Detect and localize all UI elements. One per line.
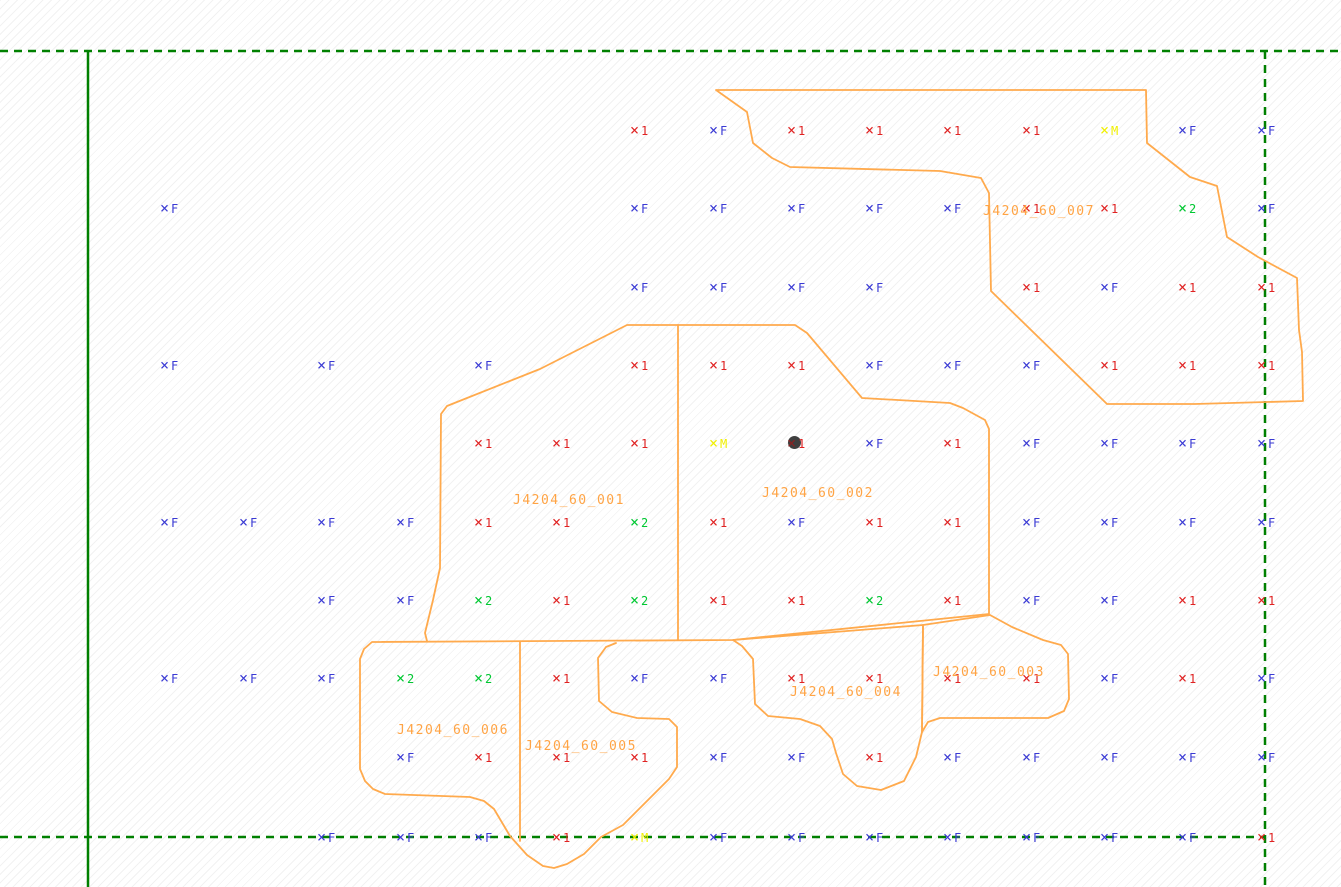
flag-marker-1[interactable]: ×1 (943, 592, 961, 608)
flag-marker-F[interactable]: ×F (1022, 592, 1040, 608)
flag-marker-F[interactable]: ×F (943, 749, 961, 765)
cross-icon: × (787, 434, 796, 452)
marker-type-letter: F (1189, 516, 1196, 530)
cross-icon: × (865, 121, 874, 139)
flag-marker-F[interactable]: ×F (396, 829, 414, 845)
marker-type-letter: 1 (1033, 124, 1040, 138)
flag-marker-F[interactable]: ×F (1022, 829, 1040, 845)
flag-marker-F[interactable]: ×F (787, 829, 805, 845)
flag-marker-F[interactable]: ×F (317, 829, 335, 845)
flag-marker-1[interactable]: ×1 (865, 514, 883, 530)
marker-type-letter: 1 (876, 672, 883, 686)
cross-icon: × (1100, 513, 1109, 531)
cross-icon: × (317, 828, 326, 846)
cross-icon: × (1100, 669, 1109, 687)
flag-marker-1[interactable]: ×1 (1257, 279, 1275, 295)
marker-type-letter: 1 (641, 124, 648, 138)
flag-marker-F[interactable]: ×F (1022, 435, 1040, 451)
cross-icon: × (552, 513, 561, 531)
flag-marker-1[interactable]: ×1 (943, 435, 961, 451)
cross-icon: × (160, 356, 169, 374)
flag-marker-1[interactable]: ×1 (1100, 200, 1118, 216)
flag-marker-1[interactable]: ×1 (1178, 279, 1196, 295)
cross-icon: × (1178, 278, 1187, 296)
flag-marker-F[interactable]: ×F (865, 279, 883, 295)
cross-icon: × (865, 513, 874, 531)
marker-type-letter: 1 (563, 594, 570, 608)
flag-marker-1[interactable]: ×1 (709, 357, 727, 373)
marker-type-letter: F (798, 831, 805, 845)
flag-marker-F[interactable]: ×F (709, 749, 727, 765)
flag-marker-F[interactable]: ×F (1100, 829, 1118, 845)
marker-type-letter: F (876, 202, 883, 216)
marker-type-letter: F (876, 831, 883, 845)
marker-type-letter: F (798, 516, 805, 530)
flag-marker-1[interactable]: ×1 (1178, 670, 1196, 686)
cross-icon: × (943, 748, 952, 766)
flag-marker-1[interactable]: ×1 (1178, 357, 1196, 373)
marker-type-letter: 1 (641, 751, 648, 765)
cross-icon: × (943, 356, 952, 374)
flag-marker-2[interactable]: ×2 (630, 592, 648, 608)
zone-label-J4204_60_002[interactable]: J4204_60_002 (762, 487, 874, 500)
cross-icon: × (160, 669, 169, 687)
cross-icon: × (787, 591, 796, 609)
marker-type-letter: 1 (641, 437, 648, 451)
flag-marker-F[interactable]: ×F (943, 357, 961, 373)
marker-type-letter: 1 (954, 594, 961, 608)
marker-type-letter: F (250, 516, 257, 530)
marker-type-letter: F (798, 751, 805, 765)
cross-icon: × (630, 121, 639, 139)
marker-type-letter: 2 (1189, 202, 1196, 216)
cross-icon: × (709, 828, 718, 846)
cross-icon: × (630, 356, 639, 374)
cross-icon: × (317, 513, 326, 531)
cross-icon: × (787, 828, 796, 846)
cross-icon: × (865, 828, 874, 846)
flag-marker-F[interactable]: ×F (474, 829, 492, 845)
marker-type-letter: F (1033, 831, 1040, 845)
cross-icon: × (239, 669, 248, 687)
flag-marker-F[interactable]: ×F (787, 514, 805, 530)
flag-marker-1[interactable]: ×1 (630, 435, 648, 451)
flag-marker-F[interactable]: ×F (1100, 592, 1118, 608)
flag-marker-1[interactable]: ×1 (630, 357, 648, 373)
marker-type-letter: F (1033, 751, 1040, 765)
marker-type-letter: F (798, 202, 805, 216)
marker-type-letter: M (720, 437, 727, 451)
flag-marker-F[interactable]: ×F (474, 357, 492, 373)
flag-marker-F[interactable]: ×F (1100, 670, 1118, 686)
cross-icon: × (552, 434, 561, 452)
cross-icon: × (865, 748, 874, 766)
cross-icon: × (787, 278, 796, 296)
flag-marker-F[interactable]: ×F (1178, 435, 1196, 451)
flag-marker-2[interactable]: ×2 (474, 670, 492, 686)
cross-icon: × (1022, 828, 1031, 846)
marker-type-letter: F (720, 202, 727, 216)
cross-icon: × (1178, 513, 1187, 531)
marker-type-letter: 1 (563, 516, 570, 530)
marker-type-letter: F (407, 516, 414, 530)
flag-marker-F[interactable]: ×F (787, 279, 805, 295)
zone-label-J4204_60_007[interactable]: J4204_60_007 (983, 205, 1095, 218)
marker-type-letter: 1 (954, 437, 961, 451)
marker-type-letter: F (1111, 751, 1118, 765)
flag-marker-F[interactable]: ×F (943, 200, 961, 216)
marker-type-letter: F (328, 831, 335, 845)
flag-marker-F[interactable]: ×F (1257, 122, 1275, 138)
flag-marker-F[interactable]: ×F (1100, 749, 1118, 765)
marker-type-letter: F (171, 359, 178, 373)
flag-marker-F[interactable]: ×F (317, 592, 335, 608)
cross-icon: × (1257, 356, 1266, 374)
cross-icon: × (552, 828, 561, 846)
cross-icon: × (630, 669, 639, 687)
marker-type-letter: F (720, 672, 727, 686)
marker-type-letter: F (1189, 751, 1196, 765)
flag-marker-2[interactable]: ×2 (1178, 200, 1196, 216)
flag-marker-F[interactable]: ×F (1178, 514, 1196, 530)
marker-type-letter: 1 (1033, 281, 1040, 295)
marker-type-letter: 1 (798, 594, 805, 608)
marker-type-letter: F (171, 202, 178, 216)
flag-marker-2[interactable]: ×2 (396, 670, 414, 686)
marker-type-letter: F (641, 281, 648, 295)
flag-marker-F[interactable]: ×F (787, 749, 805, 765)
cross-icon: × (1100, 591, 1109, 609)
cross-icon: × (709, 434, 718, 452)
marker-type-letter: F (1111, 281, 1118, 295)
marker-type-letter: 1 (876, 124, 883, 138)
marker-type-letter: F (1268, 202, 1275, 216)
cross-icon: × (396, 748, 405, 766)
cross-icon: × (787, 121, 796, 139)
flag-marker-2[interactable]: ×2 (474, 592, 492, 608)
flag-marker-F[interactable]: ×F (160, 670, 178, 686)
flag-marker-F[interactable]: ×F (1257, 200, 1275, 216)
marker-type-letter: F (250, 672, 257, 686)
marker-type-letter: 1 (720, 516, 727, 530)
marker-type-letter: F (720, 124, 727, 138)
cross-icon: × (1178, 356, 1187, 374)
marker-type-letter: 1 (563, 437, 570, 451)
marker-type-letter: 1 (954, 516, 961, 530)
cross-icon: × (787, 748, 796, 766)
marker-type-letter: F (641, 202, 648, 216)
flag-marker-M[interactable]: ×M (630, 829, 648, 845)
flag-marker-F[interactable]: ×F (630, 670, 648, 686)
flag-marker-F[interactable]: ×F (1100, 514, 1118, 530)
flag-marker-F[interactable]: ×F (1257, 749, 1275, 765)
marker-type-letter: 1 (1189, 359, 1196, 373)
flag-marker-F[interactable]: ×F (709, 122, 727, 138)
flag-marker-1[interactable]: ×1 (1100, 357, 1118, 373)
flag-marker-1[interactable]: ×1 (630, 122, 648, 138)
marker-type-letter: 1 (485, 516, 492, 530)
flag-marker-1[interactable]: ×1 (943, 514, 961, 530)
marker-type-letter: F (798, 281, 805, 295)
marker-type-letter: 1 (485, 437, 492, 451)
flag-marker-1[interactable]: ×1 (787, 592, 805, 608)
cross-icon: × (1178, 748, 1187, 766)
cross-icon: × (865, 591, 874, 609)
marker-type-letter: 1 (1268, 281, 1275, 295)
marker-type-letter: F (641, 672, 648, 686)
cross-icon: × (943, 828, 952, 846)
flag-marker-M[interactable]: ×M (1100, 122, 1118, 138)
marker-type-letter: 1 (954, 124, 961, 138)
marker-type-letter: 1 (1268, 359, 1275, 373)
flag-marker-F[interactable]: ×F (1178, 829, 1196, 845)
flag-marker-F[interactable]: ×F (239, 514, 257, 530)
flag-marker-1[interactable]: ×1 (474, 514, 492, 530)
cross-icon: × (1257, 434, 1266, 452)
flag-marker-2[interactable]: ×2 (865, 592, 883, 608)
flag-marker-F[interactable]: ×F (865, 435, 883, 451)
map-geometry-layer (0, 0, 1341, 887)
marker-type-letter: F (1111, 672, 1118, 686)
cross-icon: × (630, 199, 639, 217)
marker-type-letter: F (1189, 437, 1196, 451)
flag-marker-F[interactable]: ×F (1022, 514, 1040, 530)
cross-icon: × (1257, 828, 1266, 846)
cross-icon: × (709, 121, 718, 139)
marker-type-letter: F (485, 831, 492, 845)
cross-icon: × (787, 513, 796, 531)
flag-marker-F[interactable]: ×F (630, 200, 648, 216)
marker-type-letter: 2 (485, 672, 492, 686)
marker-type-letter: 1 (1268, 594, 1275, 608)
cross-icon: × (317, 591, 326, 609)
flag-marker-1[interactable]: ×1 (1022, 279, 1040, 295)
cross-icon: × (396, 669, 405, 687)
flag-marker-1[interactable]: ×1 (709, 514, 727, 530)
marker-type-letter: 1 (876, 516, 883, 530)
flag-marker-F[interactable]: ×F (1178, 749, 1196, 765)
flag-marker-1[interactable]: ×1 (1257, 357, 1275, 373)
marker-type-letter: F (1189, 831, 1196, 845)
marker-type-letter: 2 (641, 516, 648, 530)
flag-marker-1[interactable]: ×1 (1022, 122, 1040, 138)
cross-icon: × (1257, 121, 1266, 139)
flag-marker-F[interactable]: ×F (1100, 279, 1118, 295)
flag-marker-2[interactable]: ×2 (630, 514, 648, 530)
flag-marker-F[interactable]: ×F (709, 670, 727, 686)
marker-type-letter: 1 (1111, 202, 1118, 216)
marker-type-letter: F (407, 751, 414, 765)
marker-type-letter: F (328, 516, 335, 530)
flag-marker-F[interactable]: ×F (396, 749, 414, 765)
flag-marker-F[interactable]: ×F (1100, 435, 1118, 451)
cross-icon: × (1257, 513, 1266, 531)
cross-icon: × (1100, 828, 1109, 846)
cross-icon: × (1257, 591, 1266, 609)
flag-marker-F[interactable]: ×F (943, 829, 961, 845)
zone-label-J4204_60_006[interactable]: J4204_60_006 (397, 724, 509, 737)
flag-marker-1[interactable]: ×1 (474, 435, 492, 451)
cross-icon: × (1022, 121, 1031, 139)
marker-type-letter: 2 (876, 594, 883, 608)
flag-marker-F[interactable]: ×F (630, 279, 648, 295)
marker-type-letter: F (954, 831, 961, 845)
flag-marker-F[interactable]: ×F (865, 357, 883, 373)
flag-marker-1[interactable]: ×1 (1178, 592, 1196, 608)
marker-type-letter: F (171, 672, 178, 686)
cross-icon: × (1022, 356, 1031, 374)
marker-type-letter: F (1268, 124, 1275, 138)
flag-marker-F[interactable]: ×F (1257, 435, 1275, 451)
zone-outline-J4204_60_004[interactable] (733, 625, 923, 790)
flag-marker-F[interactable]: ×F (1257, 514, 1275, 530)
flag-marker-1[interactable]: ×1 (474, 749, 492, 765)
flag-marker-F[interactable]: ×F (317, 670, 335, 686)
marker-type-letter: F (328, 359, 335, 373)
flag-marker-1[interactable]: ×1 (709, 592, 727, 608)
flag-marker-1[interactable]: ×1 (865, 749, 883, 765)
flag-marker-F[interactable]: ×F (709, 279, 727, 295)
cross-icon: × (317, 356, 326, 374)
cross-icon: × (865, 278, 874, 296)
cross-icon: × (396, 591, 405, 609)
flag-marker-M[interactable]: ×M (709, 435, 727, 451)
cross-icon: × (1022, 591, 1031, 609)
zone-outline-J4204_60_001-002-outer[interactable] (360, 325, 989, 868)
cross-icon: × (1100, 434, 1109, 452)
flag-marker-F[interactable]: ×F (709, 200, 727, 216)
flag-marker-1[interactable]: ×1 (552, 435, 570, 451)
flag-marker-F[interactable]: ×F (865, 200, 883, 216)
flag-marker-1[interactable]: ×1 (552, 592, 570, 608)
cross-icon: × (630, 278, 639, 296)
flag-marker-F[interactable]: ×F (1022, 749, 1040, 765)
flag-marker-1[interactable]: ×1 (865, 122, 883, 138)
cross-icon: × (943, 591, 952, 609)
flag-marker-1[interactable]: ×1 (787, 357, 805, 373)
marker-type-letter: 1 (798, 124, 805, 138)
flag-marker-F[interactable]: ×F (787, 200, 805, 216)
flag-marker-1[interactable]: ×1 (787, 670, 805, 686)
cross-icon: × (709, 199, 718, 217)
marker-type-letter: 1 (1189, 594, 1196, 608)
flag-marker-F[interactable]: ×F (160, 357, 178, 373)
cross-icon: × (630, 513, 639, 531)
marker-type-letter: F (1033, 516, 1040, 530)
flag-marker-1[interactable]: ×1 (865, 670, 883, 686)
flag-marker-1[interactable]: ×1 (1257, 829, 1275, 845)
cross-icon: × (943, 121, 952, 139)
marker-type-letter: 1 (1268, 831, 1275, 845)
cross-icon: × (865, 434, 874, 452)
marker-type-letter: 1 (641, 359, 648, 373)
flag-marker-F[interactable]: ×F (396, 514, 414, 530)
marker-type-letter: F (1268, 672, 1275, 686)
marker-type-letter: F (1111, 594, 1118, 608)
flag-marker-F[interactable]: ×F (1022, 357, 1040, 373)
cross-icon: × (943, 434, 952, 452)
cross-icon: × (239, 513, 248, 531)
marker-type-letter: 1 (1189, 672, 1196, 686)
flag-marker-F[interactable]: ×F (396, 592, 414, 608)
cross-icon: × (1100, 199, 1109, 217)
marker-type-letter: F (1268, 516, 1275, 530)
marker-type-letter: F (720, 831, 727, 845)
map-viewport: ×1×F×1×1×1×1×M×F×F×F×F×F×F×F×F×1×1×2×F×F… (0, 0, 1341, 887)
cross-icon: × (474, 434, 483, 452)
zone-label-J4204_60_003[interactable]: J4204_60_003 (933, 666, 1045, 679)
shotpoint-dot-marker-1[interactable]: ×1 (787, 435, 805, 451)
flag-marker-F[interactable]: ×F (239, 670, 257, 686)
marker-type-letter: 1 (798, 437, 805, 451)
cross-icon: × (160, 513, 169, 531)
flag-marker-F[interactable]: ×F (317, 514, 335, 530)
flag-marker-1[interactable]: ×1 (1257, 592, 1275, 608)
cross-icon: × (1178, 121, 1187, 139)
flag-marker-1[interactable]: ×1 (552, 670, 570, 686)
cross-icon: × (1022, 748, 1031, 766)
marker-type-letter: 2 (407, 672, 414, 686)
cross-icon: × (943, 513, 952, 531)
flag-marker-F[interactable]: ×F (160, 200, 178, 216)
marker-type-letter: F (1268, 437, 1275, 451)
flag-marker-F[interactable]: ×F (317, 357, 335, 373)
flag-marker-F[interactable]: ×F (709, 829, 727, 845)
marker-type-letter: F (954, 202, 961, 216)
marker-type-letter: M (641, 831, 648, 845)
flag-marker-F[interactable]: ×F (865, 829, 883, 845)
cross-icon: × (474, 356, 483, 374)
cross-icon: × (1022, 513, 1031, 531)
marker-type-letter: F (171, 516, 178, 530)
flag-marker-1[interactable]: ×1 (787, 122, 805, 138)
zone-label-J4204_60_005[interactable]: J4204_60_005 (525, 740, 637, 753)
marker-type-letter: F (328, 672, 335, 686)
cross-icon: × (1100, 748, 1109, 766)
marker-type-letter: F (1033, 437, 1040, 451)
marker-type-letter: 2 (485, 594, 492, 608)
cross-icon: × (552, 591, 561, 609)
flag-marker-F[interactable]: ×F (1257, 670, 1275, 686)
flag-marker-1[interactable]: ×1 (552, 829, 570, 845)
marker-type-letter: 1 (720, 359, 727, 373)
marker-type-letter: 1 (563, 672, 570, 686)
cross-icon: × (396, 513, 405, 531)
marker-type-letter: F (407, 594, 414, 608)
marker-type-letter: 1 (563, 831, 570, 845)
marker-type-letter: F (1268, 751, 1275, 765)
marker-type-letter: F (328, 594, 335, 608)
marker-type-letter: 2 (641, 594, 648, 608)
flag-marker-F[interactable]: ×F (1178, 122, 1196, 138)
marker-type-letter: F (1111, 831, 1118, 845)
marker-type-letter: 1 (1111, 359, 1118, 373)
cross-icon: × (709, 591, 718, 609)
cross-icon: × (1100, 121, 1109, 139)
cross-icon: × (1022, 278, 1031, 296)
cross-icon: × (865, 356, 874, 374)
flag-marker-F[interactable]: ×F (160, 514, 178, 530)
cross-icon: × (396, 828, 405, 846)
flag-marker-1[interactable]: ×1 (552, 514, 570, 530)
zone-label-J4204_60_001[interactable]: J4204_60_001 (513, 494, 625, 507)
cross-icon: × (709, 748, 718, 766)
marker-type-letter: 1 (485, 751, 492, 765)
marker-type-letter: F (1111, 516, 1118, 530)
zone-label-J4204_60_004[interactable]: J4204_60_004 (790, 686, 902, 699)
cross-icon: × (787, 356, 796, 374)
flag-marker-1[interactable]: ×1 (943, 122, 961, 138)
